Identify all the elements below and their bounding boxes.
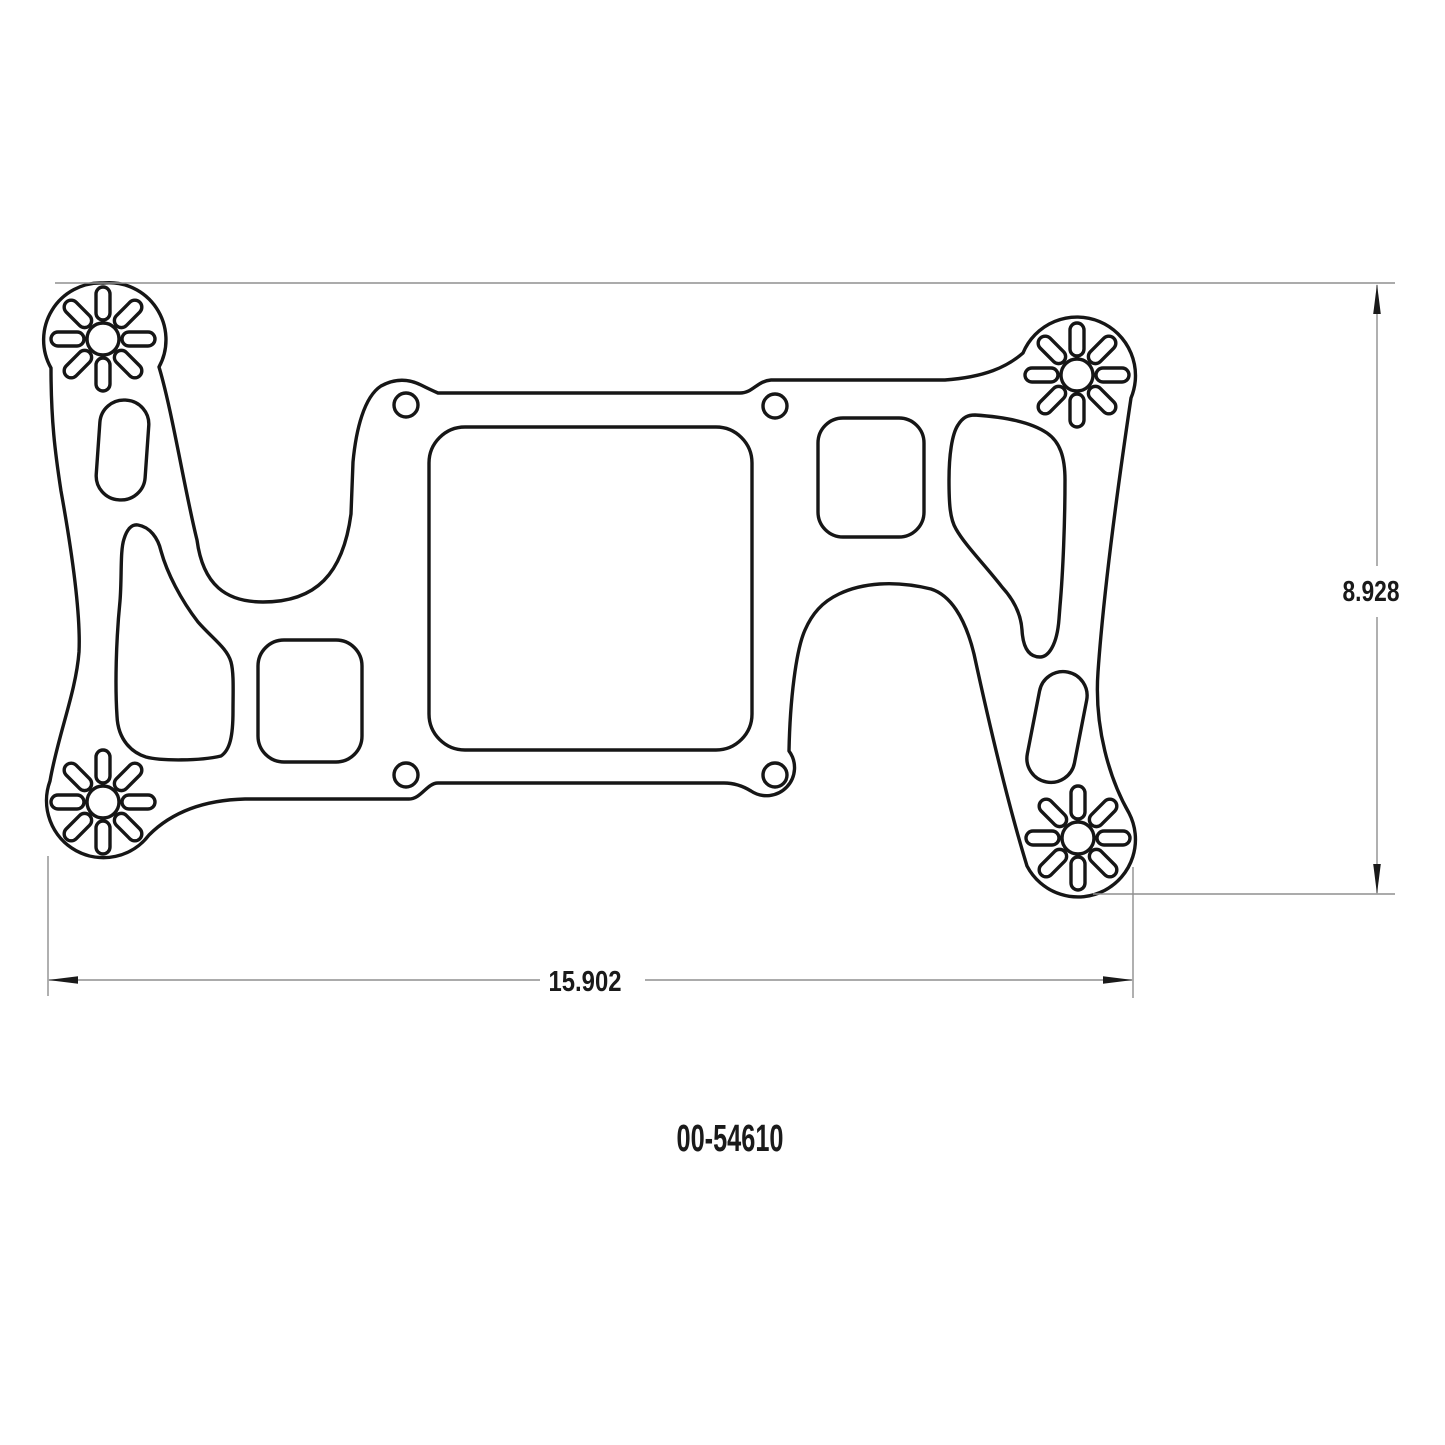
width-dimension: 15.902 <box>48 856 1133 998</box>
cutout-blob-right <box>949 415 1065 657</box>
bolt-hole-bottom-left <box>394 763 418 787</box>
slot-left-arm <box>95 398 151 501</box>
technical-drawing-canvas: 8.928 15.902 00-54610 <box>0 0 1445 1445</box>
plate-outline-group <box>44 283 1136 897</box>
cutout-blob-left <box>116 525 233 760</box>
bolt-hole-bottom-right <box>763 763 787 787</box>
plate-outer-outline <box>44 283 1136 897</box>
flower-pad-bottom-left <box>51 750 155 854</box>
width-dimension-label: 15.902 <box>549 966 622 998</box>
dim-arrow-up <box>1373 284 1381 314</box>
cutout-square-left <box>258 640 362 762</box>
technical-drawing-page: 8.928 15.902 00-54610 <box>0 0 1445 1445</box>
dim-arrow-down <box>1373 864 1381 894</box>
dimension-annotations: 8.928 15.902 00-54610 <box>48 283 1400 1160</box>
cutout-square-center <box>429 427 752 750</box>
dim-arrow-left <box>48 976 78 984</box>
flower-pad-bottom-right <box>1026 786 1130 890</box>
cutout-square-right <box>818 418 924 537</box>
bolt-hole-top-right <box>763 394 787 418</box>
bolt-hole-top-left <box>394 393 418 417</box>
slot-right-arm <box>1023 667 1091 786</box>
flower-pad-top-left <box>51 287 155 391</box>
height-dimension-label: 8.928 <box>1343 576 1400 608</box>
flower-pad-top-right <box>1025 323 1129 427</box>
dim-arrow-right <box>1103 976 1133 984</box>
part-number-label: 00-54610 <box>677 1118 784 1160</box>
height-dimension: 8.928 <box>55 283 1400 894</box>
